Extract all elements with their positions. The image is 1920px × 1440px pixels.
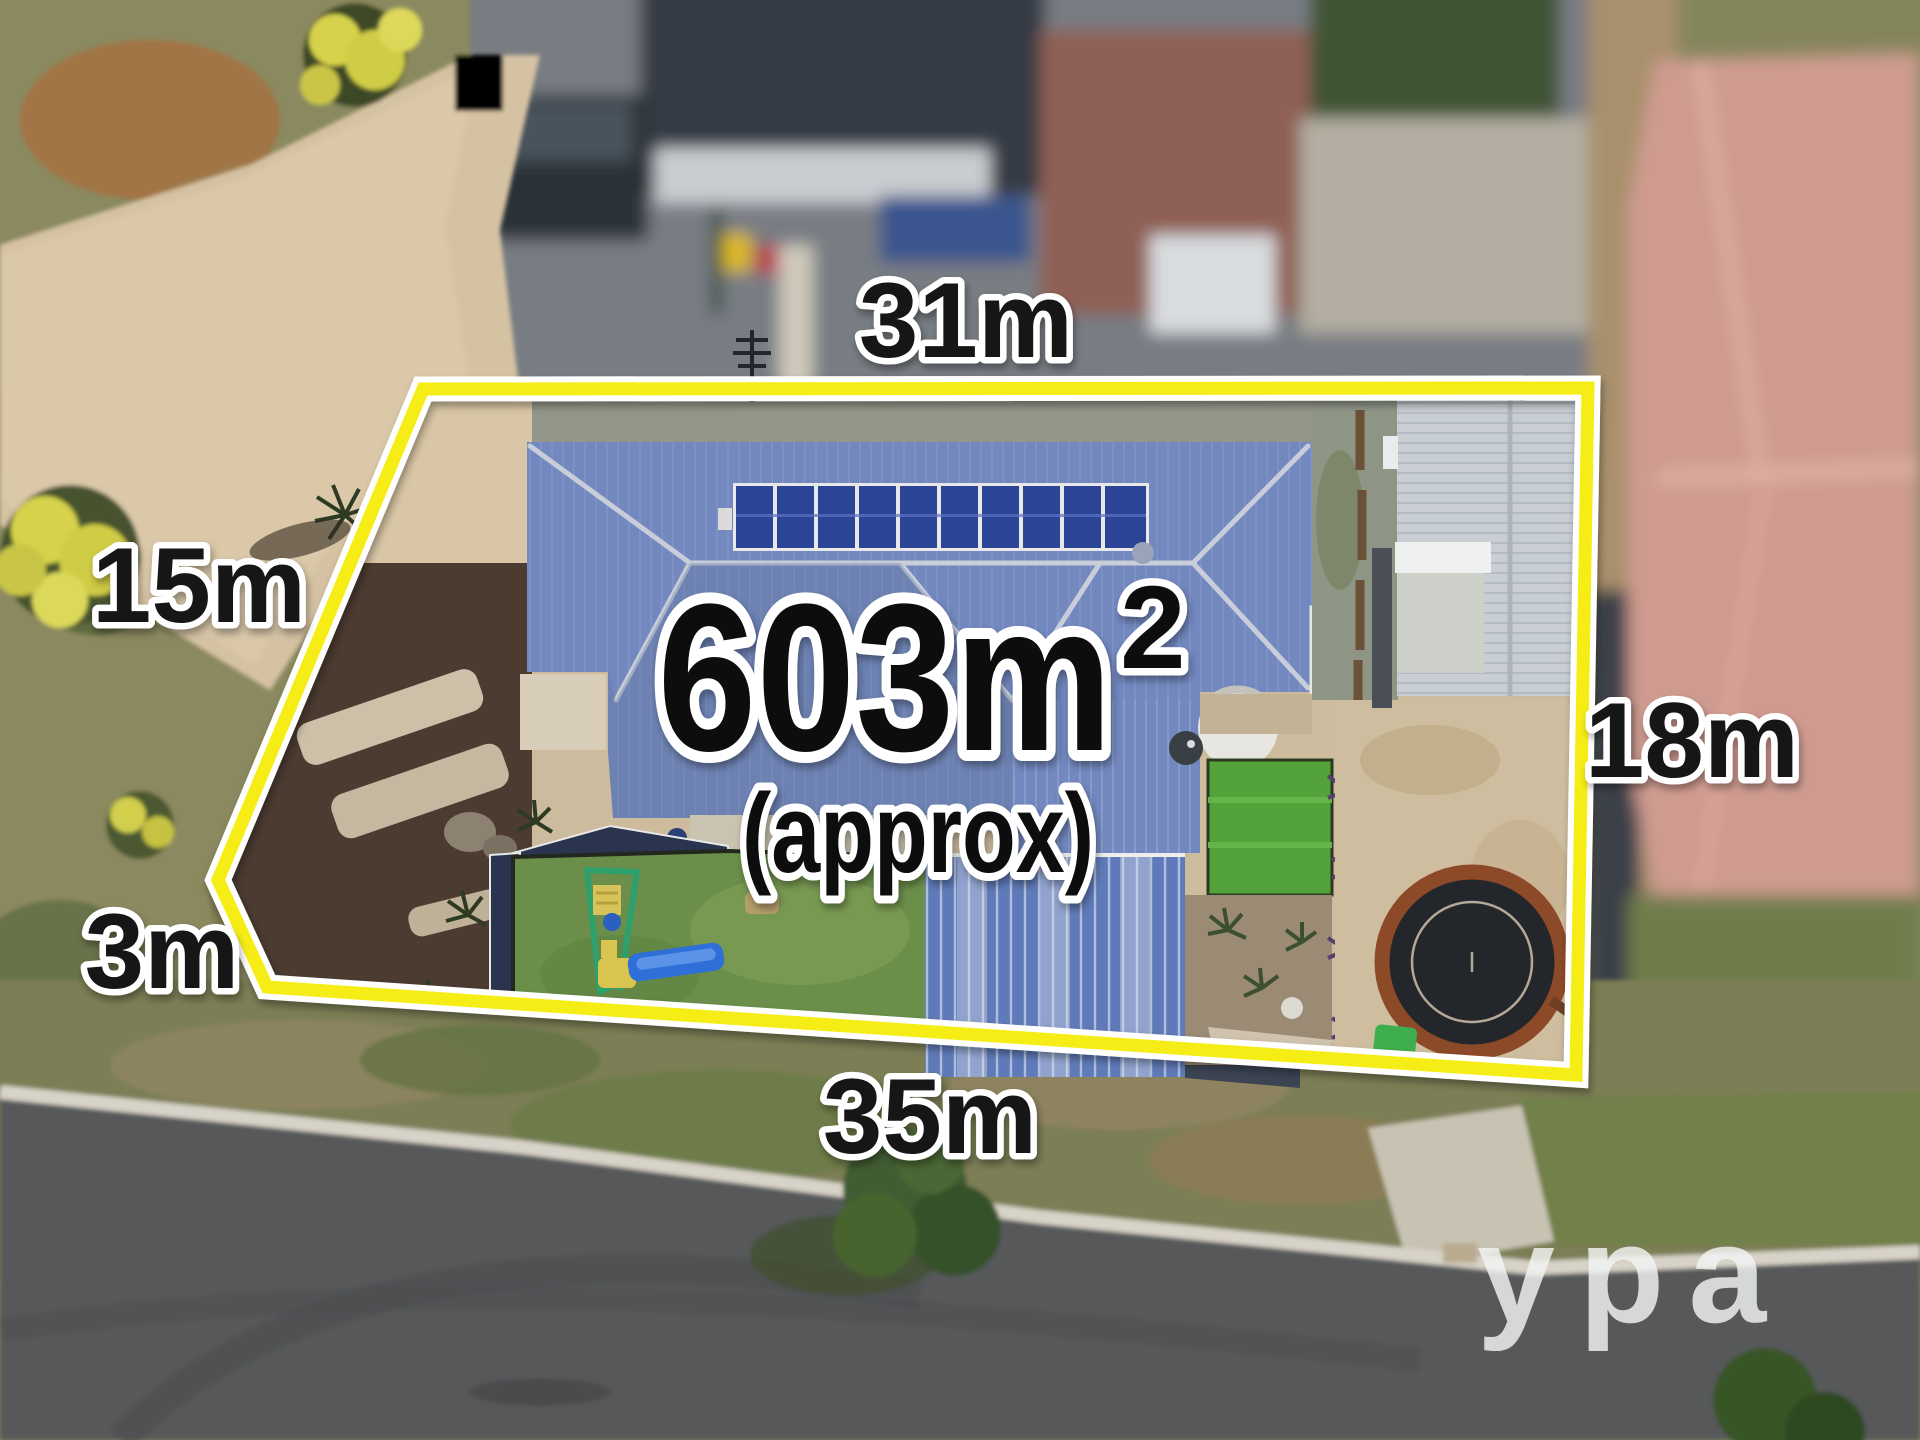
fence-shadow <box>1372 548 1392 708</box>
dimension-label-right: 18m <box>1585 680 1799 800</box>
aerial-photo: 31m 15m 3m 18m 35m 603m 2 (approx) ypa <box>0 0 1920 1440</box>
white-path <box>779 245 813 392</box>
area-label: 603m <box>658 560 1113 795</box>
satellite-dish-lnb <box>1187 740 1195 748</box>
dimension-label-bottom: 35m <box>823 1056 1037 1176</box>
dimension-label-bottom-left: 3m <box>85 891 240 1011</box>
hedge <box>1310 0 1560 120</box>
aerial-scene: 31m 15m 3m 18m 35m 603m 2 (approx) ypa <box>0 0 1920 1440</box>
pole <box>712 208 722 314</box>
stepping-stone <box>1281 997 1303 1019</box>
garage-roof <box>1383 392 1582 696</box>
dimension-label-left: 15m <box>92 525 306 645</box>
neighbour-garage-door <box>655 148 990 203</box>
concrete-bar <box>455 55 503 111</box>
area-exponent: 2 <box>1120 562 1186 694</box>
side-path-moss <box>1316 450 1364 590</box>
dimension-label-top: 31m <box>859 260 1073 380</box>
yellow-car <box>718 233 752 272</box>
satellite-dish-icon <box>1169 731 1203 765</box>
artificial-turf <box>1208 760 1332 895</box>
area-qualifier: (approx) <box>742 771 1094 896</box>
yellow-bush-small <box>106 791 174 859</box>
entry-path <box>520 674 606 750</box>
road-patch <box>470 1378 610 1406</box>
ypa-logo: ypa <box>1477 1195 1790 1352</box>
nature-strip-patch-6 <box>360 1025 600 1095</box>
rear-concrete <box>1200 694 1312 734</box>
neighbour-solar-panels <box>880 196 1030 262</box>
side-driveway <box>1300 118 1630 333</box>
driveway-crossover <box>1443 1243 1477 1263</box>
sand-patch-1 <box>1360 725 1500 795</box>
roof-vent <box>1132 542 1154 564</box>
white-shed <box>1150 235 1275 333</box>
solar-panel-array <box>718 483 1149 551</box>
